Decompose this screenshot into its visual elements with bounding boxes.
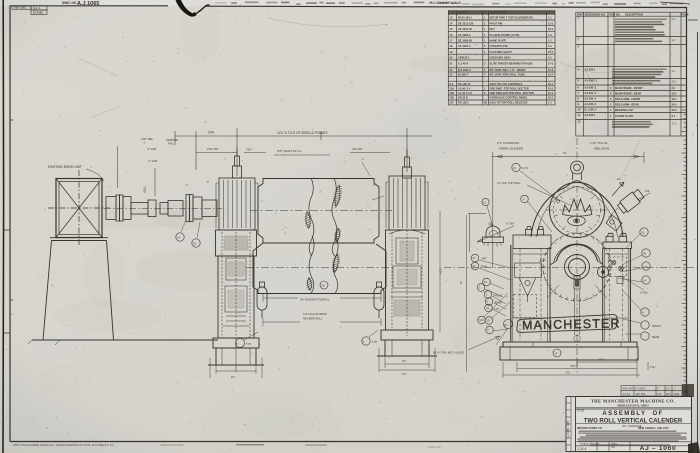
svg-text:AJ-106-.3: AJ-106-.3 xyxy=(585,91,597,95)
svg-text:A1-106-1.1: A1-106-1.1 xyxy=(585,79,599,83)
svg-text:KEY: KEY xyxy=(490,27,496,31)
svg-text:FRONT: FRONT xyxy=(652,324,661,328)
svg-text:2-1: 2-1 xyxy=(548,44,552,48)
svg-text:(8) 1¼″ DIA. MTG. HOLES: (8) 1¼″ DIA. MTG. HOLES xyxy=(433,351,464,355)
svg-text:COUPLING ASSY: COUPLING ASSY xyxy=(490,56,512,60)
svg-text:AJ – 1060: AJ – 1060 xyxy=(640,445,677,452)
svg-text:RA16 163-1: RA16 163-1 xyxy=(458,16,473,20)
svg-text:ITEM NO.: ITEM NO. xyxy=(609,13,621,17)
svg-text:MAIN FRAME - REAR: MAIN FRAME - REAR xyxy=(615,91,641,95)
svg-text:AJ-40-1.5-8: AJ-40-1.5-8 xyxy=(458,91,472,95)
svg-text:DJ 961-7: DJ 961-7 xyxy=(458,72,469,76)
svg-text:105: 105 xyxy=(450,91,455,95)
svg-text:P.U.421.U.G.P.A.P. 32: P.U.421.U.G.P.A.P. 32 xyxy=(430,1,462,5)
svg-text:22-1: 22-1 xyxy=(672,80,678,84)
svg-text:P.P.L: P.P.L xyxy=(168,142,174,146)
svg-text:MT. VERT. WILL 1.17 - FRONT: MT. VERT. WILL 1.17 - FRONT xyxy=(490,68,527,72)
svg-text:ASSEMBLY OF: ASSEMBLY OF xyxy=(602,411,663,417)
svg-text:6244: 6244 xyxy=(674,392,680,396)
svg-text:DWG NO: DWG NO xyxy=(458,12,468,15)
svg-text:104: 104 xyxy=(450,87,455,91)
svg-text:127: 127 xyxy=(657,392,662,396)
svg-text:15-1: 15-1 xyxy=(548,87,554,91)
svg-text:PIVOT PIN: PIVOT PIN xyxy=(490,21,503,25)
svg-text:3-1: 3-1 xyxy=(672,38,676,42)
svg-text:1-1: 1-1 xyxy=(548,16,552,20)
svg-text:17-1: 17-1 xyxy=(672,122,678,126)
svg-text:FROUT: FROUT xyxy=(494,294,503,298)
svg-text:20-1: 20-1 xyxy=(672,102,678,106)
svg-text:CE 1012-40: CE 1012-40 xyxy=(458,27,472,31)
svg-text:9¾″: 9¾″ xyxy=(402,359,407,363)
svg-text:14′1″ E TO E OF BRGS & FRAMES: 14′1″ E TO E OF BRGS & FRAMES xyxy=(277,131,328,135)
svg-text:0.3: 0.3 xyxy=(450,82,454,86)
svg-text:1′-10″ TO E OF: 1′-10″ TO E OF xyxy=(590,141,608,145)
svg-text:AJ-106-1: AJ-106-1 xyxy=(585,113,596,117)
svg-text:1′3″: 1′3″ xyxy=(402,372,406,376)
svg-text:12-1: 12-1 xyxy=(672,91,678,95)
svg-text:5′6″ FACE BOTTOM R′LL: 5′6″ FACE BOTTOM R′LL xyxy=(300,298,330,302)
svg-text:COVER PLATE: COVER PLATE xyxy=(615,114,634,118)
svg-text:105: 105 xyxy=(643,265,648,269)
svg-text:RETUR PIPE F TOP CALENDER RO: RETUR PIPE F TOP CALENDER RO xyxy=(490,16,534,20)
svg-text:DESCRIPTION: DESCRIPTION xyxy=(625,13,643,17)
svg-text:13-7: 13-7 xyxy=(548,72,554,76)
svg-text:10⋆: 10⋆ xyxy=(504,323,509,327)
svg-text:1 2: 1 2 xyxy=(666,386,670,390)
svg-text:4′1½: 4′1½ xyxy=(439,268,443,274)
svg-text:CHECKED BY DWG: CHECKED BY DWG xyxy=(160,443,184,447)
svg-text:EXISTING DRIVE UNIT: EXISTING DRIVE UNIT xyxy=(48,165,82,169)
svg-text:MAIN FRAME - FRONT: MAIN FRAME - FRONT xyxy=(615,86,643,90)
svg-text:EVAL: EVAL xyxy=(481,265,488,269)
svg-text:RE-HERS ROLL: RE-HERS ROLL xyxy=(303,317,323,321)
svg-text:⅞″ GAP: ⅞″ GAP xyxy=(148,159,158,163)
svg-text:1⋆: 1⋆ xyxy=(236,342,239,346)
svg-text:DWG. NO: DWG. NO xyxy=(62,1,77,5)
svg-text:AJ 1065: AJ 1065 xyxy=(33,11,43,15)
svg-text:1′8¾ RD: 1′8¾ RD xyxy=(352,147,362,151)
svg-text:REEL DRUM: REEL DRUM xyxy=(594,147,609,151)
svg-text:2′3½″: 2′3½″ xyxy=(598,358,605,362)
svg-text:15-2: 15-2 xyxy=(548,68,554,72)
svg-text:A.J.1065 1065: A.J.1065 1065 xyxy=(566,420,570,438)
svg-text:COVER PLATE: COVER PLATE xyxy=(490,44,509,48)
svg-text:AJ-40-.3-4: AJ-40-.3-4 xyxy=(458,87,471,91)
svg-text:27-1: 27-1 xyxy=(548,50,554,54)
svg-text:ASSY OF HYD CONTROLS: ASSY OF HYD CONTROLS xyxy=(490,82,523,86)
svg-text:NAME PLATE: NAME PLATE xyxy=(490,39,507,43)
svg-text:CE 1002-2: CE 1002-2 xyxy=(458,33,471,37)
svg-text:HYDRAULIC CONTROL PANEL: HYDRAULIC CONTROL PANEL xyxy=(490,96,529,100)
svg-text:FIELD ARM - FRONT: FIELD ARM - FRONT xyxy=(615,97,641,101)
svg-text:MANCHESTER: MANCHESTER xyxy=(522,316,621,332)
svg-text:D.3 1061-2: D.3 1061-2 xyxy=(458,68,471,72)
svg-text:1⋆: 1⋆ xyxy=(363,340,366,344)
svg-text:5-1: 5-1 xyxy=(548,56,552,60)
svg-text:GRD DWG -TOP ROLL DOCTOR: GRD DWG -TOP ROLL DOCTOR xyxy=(490,87,529,91)
svg-text:2-1: 2-1 xyxy=(672,114,676,118)
svg-text:1 6 44: 1 6 44 xyxy=(623,392,631,396)
svg-text:MT. VERT. WITH ROLL TUBE: MT. VERT. WITH ROLL TUBE xyxy=(490,72,525,76)
svg-text:5′1″: 5′1″ xyxy=(566,371,570,375)
svg-text:6⁻″DIA: 6⁻″DIA xyxy=(506,222,514,226)
svg-text:AJ-106-1: AJ-106-1 xyxy=(585,68,596,72)
svg-text:PAGE: PAGE xyxy=(682,13,689,17)
svg-text:1-1: 1-1 xyxy=(548,33,552,37)
svg-text:REF DWG: REF DWG xyxy=(14,6,26,10)
svg-text:84 2: 84 2 xyxy=(666,392,672,396)
svg-text:PLAQUE STAMP [AJ 65]: PLAQUE STAMP [AJ 65] xyxy=(490,33,520,37)
svg-text:X: X xyxy=(186,183,188,187)
svg-text:TYP: TYP xyxy=(246,342,251,346)
svg-text:1¼″ DIA. TOP ROLL: 1¼″ DIA. TOP ROLL xyxy=(497,181,521,185)
svg-text:AJ-106-.2: AJ-106-.2 xyxy=(585,86,597,90)
svg-text:GRD DWG BOTTOM ROLL DOCTOR: GRD DWG BOTTOM ROLL DOCTOR xyxy=(490,91,535,95)
svg-text:A.J.1065: A.J.1065 xyxy=(77,1,99,7)
svg-text:A: A xyxy=(684,389,689,395)
svg-text:4′5⅜″ RD.: 4′5⅜″ RD. xyxy=(207,147,219,151)
svg-text:PRINT AND EXAMINE CAREFULLY. R: PRINT AND EXAMINE CAREFULLY. REPORT ERRO… xyxy=(13,443,115,447)
svg-text:F.O.S: F.O.S xyxy=(522,166,529,170)
svg-text:4′0½″: 4′0½″ xyxy=(570,364,577,368)
svg-text:A.J 45-5: A.J 45-5 xyxy=(458,62,469,66)
svg-text:B.J-106-.7: B.J-106-.7 xyxy=(585,108,598,112)
svg-text:106: 106 xyxy=(450,96,455,100)
svg-text:4-1: 4-1 xyxy=(672,69,676,73)
svg-text:12-1: 12-1 xyxy=(548,27,554,31)
svg-text:REAR: REAR xyxy=(652,335,659,339)
svg-text:20-1: 20-1 xyxy=(672,108,678,112)
svg-text:418 754: 418 754 xyxy=(636,392,646,396)
svg-text:TITLE: TITLE xyxy=(577,409,584,413)
svg-text:VIAT: VIAT xyxy=(481,257,487,261)
svg-text:MIDDLETOWN, OHIO: MIDDLETOWN, OHIO xyxy=(617,404,649,408)
svg-text:ADAPTER: ADAPTER xyxy=(166,138,178,142)
svg-text:9¾″: 9¾″ xyxy=(231,375,236,379)
svg-text:DESCRIPTION: DESCRIPTION xyxy=(490,12,507,15)
svg-text:A.J. 1.: A.J. 1. xyxy=(33,6,41,10)
svg-text:10-1: 10-1 xyxy=(672,97,678,101)
svg-text:3-24-4: 3-24-4 xyxy=(577,447,586,451)
svg-text:NEW CARINLL / NB 1045: NEW CARINLL / NB 1045 xyxy=(638,426,669,430)
svg-text:1-1: 1-1 xyxy=(548,39,552,43)
svg-text:2′2¼″: 2′2¼″ xyxy=(246,148,253,152)
svg-text:EB 50 B: EB 50 B xyxy=(458,96,468,100)
svg-text:TWO ROLL VERTICAL CALENDER: TWO ROLL VERTICAL CALENDER xyxy=(584,419,683,425)
svg-text:15-1: 15-1 xyxy=(548,91,554,95)
svg-text:2-1: 2-1 xyxy=(672,86,676,90)
svg-text:1⅒″: 1⅒″ xyxy=(650,365,656,369)
svg-text:2′-3″ TO EXISTING: 2′-3″ TO EXISTING xyxy=(497,141,519,145)
svg-text:4′7: 4′7 xyxy=(459,280,463,284)
svg-text:DRAWING NO.: DRAWING NO. xyxy=(588,13,606,17)
svg-text:23-1: 23-1 xyxy=(548,96,554,100)
svg-text:SLITE THRUST BEARING RTI-6305: SLITE THRUST BEARING RTI-6305 xyxy=(490,62,533,66)
svg-text:2″ DIA.: 2″ DIA. xyxy=(640,291,648,295)
svg-text:104: 104 xyxy=(479,318,484,322)
svg-text:FORM 102: FORM 102 xyxy=(428,445,441,449)
svg-text:⅝″ GAP: ⅝″ GAP xyxy=(147,147,157,151)
svg-text:RA 106-15: RA 106-15 xyxy=(458,82,471,86)
svg-text:AJ-106-.4: AJ-106-.4 xyxy=(585,97,597,101)
svg-text:4′2¼: 4′2¼ xyxy=(143,186,147,193)
svg-text:FABRIK CALENDER: FABRIK CALENDER xyxy=(499,147,523,151)
svg-text:20⅜: 20⅜ xyxy=(208,131,215,135)
svg-text:↓: ↓ xyxy=(233,368,234,371)
svg-text:(5′5″) FACE TOP L.U.: (5′5″) FACE TOP L.U. xyxy=(277,149,302,153)
svg-text:27-1: 27-1 xyxy=(548,62,554,66)
svg-text:TYP: TYP xyxy=(372,340,377,344)
svg-text:⇅ E TO E OF BRGS: ⇅ E TO E OF BRGS xyxy=(303,312,327,316)
svg-text:23-1: 23-1 xyxy=(548,82,554,86)
svg-text:1-1: 1-1 xyxy=(548,101,552,105)
svg-text:FIELD ARM - REAR: FIELD ARM - REAR xyxy=(615,102,639,106)
svg-text:BEFORE PAPER CO.: BEFORE PAPER CO. xyxy=(577,426,603,430)
svg-text:2-1: 2-1 xyxy=(672,17,676,21)
svg-text:ASSY OF TOP ROLL RELEASE: ASSY OF TOP ROLL RELEASE xyxy=(490,101,528,105)
svg-text:CE 1023 b: CE 1023 b xyxy=(458,44,471,48)
svg-text:FLOATING SHAFT: FLOATING SHAFT xyxy=(490,50,513,54)
svg-text:RA 100 L: RA 100 L xyxy=(458,101,469,105)
svg-text:106: 106 xyxy=(645,189,650,193)
svg-text:CEM 24.1: CEM 24.1 xyxy=(458,56,470,60)
svg-text:107: 107 xyxy=(450,101,455,105)
svg-text:F 72547: F 72547 xyxy=(636,386,646,390)
svg-text:4.50° REF: 4.50° REF xyxy=(141,137,153,141)
svg-text:44 F 244: 44 F 244 xyxy=(623,386,634,390)
svg-text:DE 1008-58: DE 1008-58 xyxy=(458,39,472,43)
svg-text:BEARING CAP: BEARING CAP xyxy=(615,108,633,112)
svg-text:12-1: 12-1 xyxy=(548,21,554,25)
svg-text:DE 1011-139: DE 1011-139 xyxy=(458,21,474,25)
svg-text:AJ-106-.5: AJ-106-.5 xyxy=(585,102,597,106)
